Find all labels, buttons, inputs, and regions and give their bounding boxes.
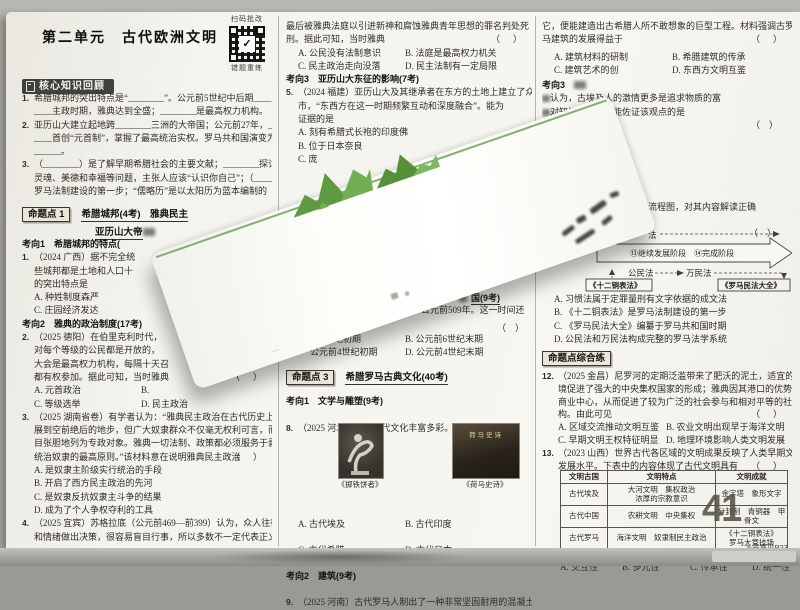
blurred-ink-mark [601,215,613,226]
table-cell: 古代埃及 [561,483,608,505]
table-header: 文明特点 [607,471,715,484]
question-number: 2. [22,119,34,132]
question-number: 1. [22,251,34,264]
qr-finder-icon [256,26,265,35]
covered-text-smudge [574,81,586,89]
question-line: 5.（2024 福建）亚历山大及其继承者在东方的土地上建立了众多的城 [286,86,532,99]
qr-finder-icon [229,53,238,62]
table-header: 文明古国 [561,471,608,484]
option: B. 《十二铜表法》是罗马法制建设的第一步 [542,306,792,319]
blurred-ink-mark [575,228,596,244]
question-line: 目张胆地列为专政对象。雅典一切法制、政策都必须服务于剥削与 [22,437,272,450]
qr-block: 扫码批改 ✓ 错题重练 [224,15,270,73]
fill-line: 1.希腊城邦的突出特点是“________”。公元前5世纪中后期____ [22,92,272,105]
right-column: 它，便能建造出古希腊人所不敢想象的巨型工程。材料强调古罗 马建筑的发展得益于（ … [542,0,792,566]
page-number-stamp: 41 [702,490,740,528]
option-row: C. 民主政治走向没落D. 民主法制有一定局限 [286,60,532,73]
question-line: 展到空前绝后的地步，但广大奴隶群众不仅毫无权利可言，而且被明 [22,424,272,437]
background-object [712,551,796,562]
arrowhead-icon [609,269,615,275]
question-line: 刑。据此可知，当时雅典（ ） [286,33,532,46]
answer-bracket: （ ） [231,451,264,464]
answer-bracket: （ ） [751,408,784,421]
covered-text-smudge [542,109,550,116]
question-number: 8. [286,422,298,435]
option-row: A. 古代埃及B. 古代印度 [286,518,532,531]
option-row: C. 建筑艺术的创D. 东西方文明互鉴 [542,64,792,77]
table-cell: 农耕文明 中央集权 [607,505,715,527]
subtopic-header: 考向3 亚历山大东征的影响(7考) [286,73,532,86]
option-row: A. 元首政治B. [22,384,272,397]
covered-text-smudge [542,95,550,102]
option: D. 公民法和万民法构成完整的罗马法学系统 [542,333,792,346]
fill-line: ______。 [22,145,272,158]
q13-flow: 13.（2023 山西）世界古代各区域的文明成果反映了人类早期文明的 发展水平。… [542,447,792,473]
table-header: 文明成就 [715,471,787,484]
statue-head [354,434,362,442]
table-row: 古代埃及 大河文明 集权政治浓厚的宗教意识 金字塔 象形文字 [561,483,788,505]
option: D. 成为了个人争权夺利的工具 [22,504,272,517]
option-row: A. 公民没有法制意识B. 法庭是最高权力机关 [286,47,532,60]
question-line: 马建筑的发展得益于（ ） [542,33,792,46]
question-line: 证据的是 [286,113,532,126]
section-header-comprehensive: 命题点综合练 [542,348,611,366]
question-line: 9.（2025 河南）古代罗马人制出了一种非常坚固耐用的混凝土，有了 [286,596,532,609]
topic-header-1: 命题点 1 希腊城邦(4考) 雅典民主 [22,204,188,222]
homer-epic-book-image: 荷马史诗 [452,423,520,479]
table-row: 古代中国 农耕文明 中央集权 分封制 青铜器 甲骨文 [561,505,788,527]
statue-body [349,442,372,472]
topic-badge: 命题点 1 [22,207,70,222]
arrowhead-icon [773,231,780,237]
question-line: 3.（2025 湖南省卷）有学者认为：“雅典民主政治在古代历史上确实发 [22,411,272,424]
question-line: 认为，古埃及人的激情更多是追求物质的富 [542,92,792,105]
question-line: 统治奴隶的最高原则。”该材料意在说明雅典民主政治（ ） [22,451,272,464]
fill-line: 3.（________）是了解早期希腊社会的主要文献；________探讨人的 [22,158,272,171]
question-line: 4.（2025 宜宾）苏格拉底（公元前469—前399）认为，众人往往凭感觉 [22,517,272,530]
option-row: A. 区域交流推动文明互鉴B. 农业文明出现早于海洋文明 [542,421,792,434]
faint-pencil-mark [404,291,409,296]
subtopic-header: 考向2 建筑(9考) [286,570,532,583]
blurred-ink-mark [589,199,607,214]
fill-line: 灵魂、美德和幸福等问题，主张人应该“认识你自己”；（______）是 [22,172,272,185]
topic-title: 希腊城邦(4考) 雅典民主 [81,209,188,222]
question-line: 商业中心，从而促进了较为广泛的社会参与和相对平等的社会结 [542,396,792,409]
option-row: C. 早期文明王权特征明显D. 地理环境影响人类文明发展 [542,434,792,447]
question-line: 构。由此可见（ ） [542,408,792,421]
question-line: 最后被雅典法庭以引进新神和腐蚀雅典青年思想的罪名判处死 [286,20,532,33]
fill-line: ____主政时期，雅典达到全盛；________是最高权力机构。 [22,105,272,118]
option: A. 习惯法属于定罪量刑有文字依据的成文法 [542,293,792,306]
blurred-ink-mark [561,224,575,236]
answer-bracket: （ ） [497,322,524,335]
subtopic-header: 考向1 文学与雕塑(9考) [286,395,532,408]
option: B. 开启了西方民主政治的先河 [22,477,272,490]
table-header-row: 文明古国 文明特点 文明成就 [561,471,788,484]
statue-base [351,471,369,475]
table-cell: 古代中国 [561,505,608,527]
topic-badge: 命题点 3 [286,370,334,385]
answer-bracket: （ ） [491,33,524,46]
question-number: 5. [286,86,298,99]
question-line: 市，“东西方在这一时期频繁互动和深度融合”。能为 [286,100,532,113]
question-number: 12. [542,370,558,383]
topic-title: 希腊罗马古典文化(40考) [345,372,447,385]
question-number: 1. [22,92,34,105]
qr-label-bottom: 错题重练 [224,64,270,73]
shadow-patch [210,550,470,564]
arrowhead-icon [781,273,787,279]
column-divider-right [535,16,536,546]
table-cell: 古代罗马 [561,527,608,549]
question-number: 13. [542,447,558,460]
justinian-code-box-label: 《罗马民法大全》 [721,280,781,290]
subtopic-header: 考向3 [542,79,792,92]
fill-in-block: 1.希腊城邦的突出特点是“________”。公元前5世纪中后期____ ___… [22,92,272,198]
q12-flow: 12.（2025 金昌）尼罗河的定期泛滥带来了肥沃的泥土，适宜的农业环 境促进了… [542,370,792,447]
image-caption: 《荷马史诗》 [448,479,522,490]
photo-background: 第二单元 古代欧洲文明 扫码批改 ✓ 错题重练 核心知识回顾 1.希腊城邦的突出… [0,0,800,566]
discus-thrower-image [338,423,384,479]
blurred-ink-mark [575,214,587,224]
green-triangle [369,149,423,188]
topic-header-3: 命题点 3 希腊罗马古典文化(40考) [286,367,448,385]
fill-line: 罗马法制建设的第一步；“儒略历”是以太阳历为蓝本编制的 [22,185,272,198]
option: C. 《罗马民法大全》编纂于罗马共和国时期 [542,320,792,333]
notebook-icon [26,81,35,92]
twelve-tables-box-label: 《十二铜表法》 [589,280,642,290]
question-line: 它，便能建造出古希腊人所不敢想象的巨型工程。材料强调古罗 [542,20,792,33]
qr-code: ✓ [229,26,265,62]
question-number: 3. [22,411,34,424]
blurred-ink-mark [609,191,619,199]
table-cell: 大河文明 集权政治浓厚的宗教意识 [607,483,715,505]
statue-silhouette [339,424,383,478]
question-line: 12.（2025 金昌）尼罗河的定期泛滥带来了肥沃的泥土，适宜的农业环 [542,370,792,383]
question-number: 4. [22,517,34,530]
table-cell: 海洋文明 奴隶制民主政治 [607,527,715,549]
book-title: 荷马史诗 [469,432,503,440]
fill-line: ____首创“元首制”，掌握了最高统治实权。罗马共和国演变为__ [22,132,272,145]
check-icon: ✓ [239,36,255,52]
image-caption: 《掷铁饼者》 [326,479,394,490]
question-number: 2. [22,331,34,344]
arrowhead-icon [677,270,684,276]
option-row: C. 等级选举D. 民主政治 [22,398,272,411]
option: A. 是奴隶主阶级实行统治的手段 [22,464,272,477]
question-line: 13.（2023 山西）世界古代各区域的文明成果反映了人类早期文明的 [542,447,792,460]
civilization-table: 文明古国 文明特点 文明成就 古代埃及 大河文明 集权政治浓厚的宗教意识 金字塔… [560,470,788,550]
option: C. 是奴隶反抗奴隶主斗争的结果 [22,491,272,504]
qr-label-top: 扫码批改 [224,15,270,24]
faint-dots: … [268,342,282,355]
qr-finder-icon [229,26,238,35]
flow-label-citizen-law: 公民法 [628,268,654,278]
fill-line: 2.亚历山大建立起地跨________三洲的大帝国；公元前27年，____ [22,119,272,132]
flow-stage-text: ⑬继续发展阶段 ⑭完成阶段 [630,248,734,258]
question-line: 境促进了强大的中央集权国家的形成；雅典因其港口的优势成为 [542,383,792,396]
option-row: A. 建筑材料的研制B. 希腊建筑的传承 [542,51,792,64]
question-number: 9. [286,596,298,609]
answer-bracket: （ ） [751,33,784,46]
question-number: 3. [22,158,34,171]
question-line: 和情绪做出决策，很容易盲目行事，所以多数不一定代表正义。他 [22,531,272,544]
q11-options: A. 习惯法属于定罪量刑有文字依据的成文法 B. 《十二铜表法》是罗马法制建设的… [542,293,792,346]
flow-dashed-arrow [714,273,784,276]
page-title: 第二单元 古代欧洲文明 [34,28,226,46]
flow-label-nations-law: 万民法 [686,268,712,278]
faint-pencil-mark [390,292,399,300]
covered-text-smudge [143,228,155,236]
